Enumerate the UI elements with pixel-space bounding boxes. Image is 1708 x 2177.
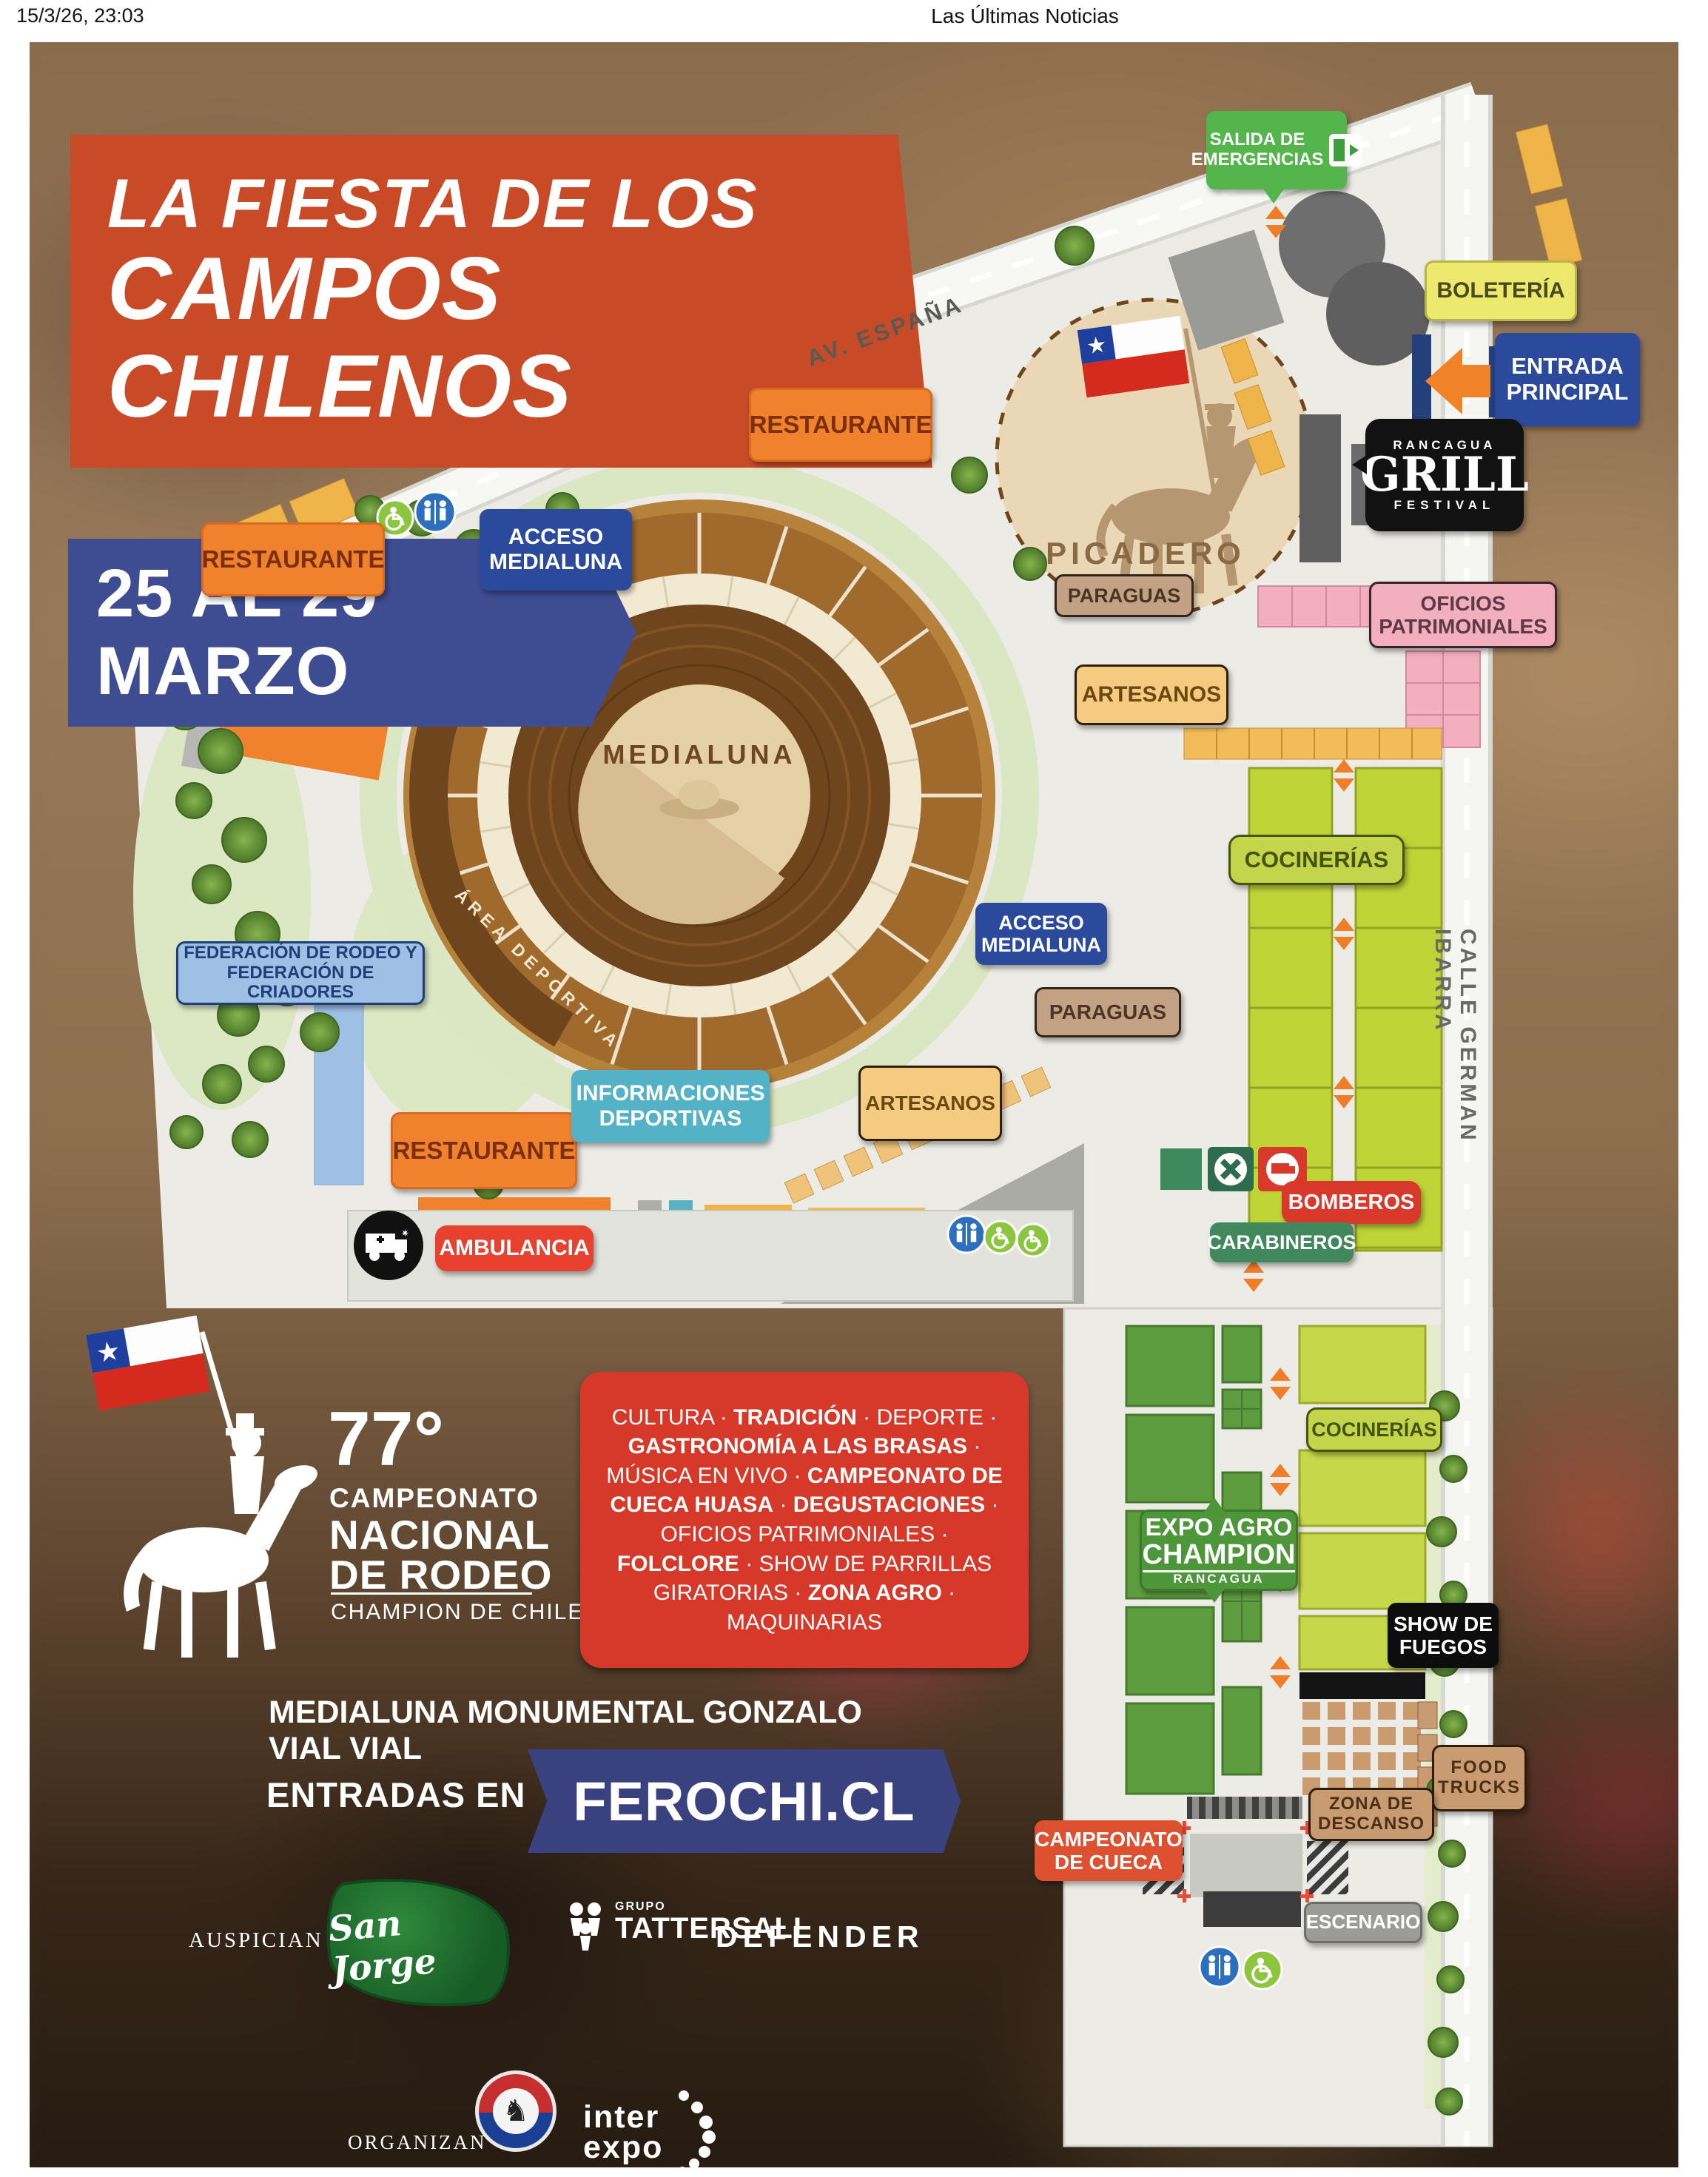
- entrance-arrow-icon: [1425, 348, 1490, 414]
- organizan-label: ORGANIZAN: [348, 2131, 486, 2154]
- badge-cocinerias-bottom: COCINERÍAS: [1306, 1407, 1442, 1452]
- tickets-site-banner: FEROCHI.CL: [528, 1749, 961, 1853]
- activities-badge: CULTURA · TRADICIÓN · DEPORTE · GASTRONO…: [580, 1372, 1029, 1668]
- page-title: Las Últimas Noticias: [931, 4, 1119, 28]
- badge-artesanos-bottom: ARTESANOS: [858, 1066, 1002, 1141]
- badge-show-de-fuegos: SHOW DE FUEGOS: [1388, 1603, 1499, 1668]
- auspician-label: AUSPICIAN: [189, 1928, 323, 1953]
- badge-ambulancia: AMBULANCIA: [435, 1225, 594, 1271]
- event-number: 77°: [328, 1396, 444, 1484]
- activities-text: CULTURA · TRADICIÓN · DEPORTE · GASTRONO…: [602, 1403, 1006, 1638]
- defender-logo: DEFENDER: [716, 1919, 924, 1954]
- expo-agro-line2: CHAMPION: [1143, 1541, 1296, 1572]
- print-timestamp: 15/3/26, 23:03: [16, 4, 144, 27]
- badge-salida-emergencias: SALIDA DE EMERGENCIAS: [1206, 111, 1347, 189]
- medialuna-label: MEDIALUNA: [603, 739, 796, 770]
- badge-food-trucks: FOOD TRUCKS: [1432, 1745, 1527, 1811]
- salida-emergencias-label: SALIDA DE EMERGENCIAS: [1191, 130, 1324, 170]
- carabineros-icon: [1208, 1147, 1254, 1191]
- emergency-exit-icon: [1329, 134, 1362, 166]
- badge-restaurante-top: RESTAURANTE: [749, 388, 932, 462]
- grill-main-label: GRILL: [1360, 451, 1529, 499]
- event-subtitle: CHAMPION DE CHILE: [331, 1600, 584, 1625]
- rider-silhouette: [124, 1413, 320, 1658]
- tattersall-icon: [565, 1900, 608, 1954]
- badge-expo-agro-champion: EXPO AGRO CHAMPION RANCAGUA: [1140, 1510, 1298, 1591]
- expo-agro-line1: EXPO AGRO: [1146, 1515, 1293, 1541]
- badge-informaciones-deportivas: INFORMACIONES DEPORTIVAS: [571, 1070, 770, 1143]
- inter-expo-logo: inter expo: [583, 2088, 721, 2177]
- badge-rancagua-grill-festival: RANCAGUA GRILL FESTIVAL: [1365, 419, 1524, 531]
- rodeo-federation-emblem-icon: ♞: [475, 2070, 557, 2152]
- badge-boleteria: BOLETERÍA: [1425, 260, 1577, 321]
- badge-entrada-principal: ENTRADA PRINCIPAL: [1495, 333, 1640, 426]
- badge-restaurante-bottom: RESTAURANTE: [391, 1112, 577, 1189]
- badge-federacion: FEDERACIÓN DE RODEO Y FEDERACIÓN DE CRIA…: [176, 941, 425, 1005]
- badge-oficios-patrimoniales: OFICIOS PATRIMONIALES: [1369, 582, 1557, 648]
- badge-carabineros: CARABINEROS: [1210, 1222, 1354, 1262]
- badge-escenario: ESCENARIO: [1304, 1902, 1422, 1943]
- badge-cocinerias-top: COCINERÍAS: [1228, 835, 1405, 885]
- poster-title-line1: LA FIESTA DE LOS: [107, 167, 932, 240]
- event-line3: DE RODEO: [329, 1551, 552, 1598]
- badge-artesanos-top: ARTESANOS: [1075, 664, 1228, 725]
- svg-text:★: ★: [1085, 332, 1108, 359]
- badge-bomberos: BOMBEROS: [1282, 1181, 1421, 1224]
- horseman-flag-art: ★: [78, 1316, 344, 1689]
- chilean-flag-icon: ★: [86, 1316, 210, 1411]
- badge-paraguas-top: PARAGUAS: [1055, 574, 1194, 617]
- picadero-label: PICADERO: [1046, 536, 1245, 571]
- svg-text:✷: ✷: [401, 1228, 409, 1239]
- badge-restaurante-left: RESTAURANTE: [201, 522, 385, 596]
- badge-zona-de-descanso: ZONA DE DESCANSO: [1308, 1788, 1434, 1841]
- event-divider: [331, 1592, 532, 1595]
- tickets-label: ENTRADAS EN: [266, 1774, 525, 1815]
- expo-agro-line3: RANCAGUA: [1173, 1572, 1264, 1586]
- ambulance-icon: ✷: [354, 1211, 423, 1280]
- san-jorge-name: San Jorge: [327, 1894, 510, 1991]
- interexpo-dots-icon: [669, 2088, 721, 2177]
- badge-campeonato-de-cueca: CAMPEONATO DE CUECA: [1035, 1820, 1183, 1881]
- grill-bottom-label: FESTIVAL: [1394, 499, 1496, 511]
- badge-paraguas-bottom: PARAGUAS: [1035, 987, 1181, 1037]
- event-line1: CAMPEONATO: [329, 1483, 539, 1514]
- interexpo-line2: expo: [583, 2130, 663, 2165]
- street-calle-german-ibarra-label: CALLE GERMAN IBARRA: [1430, 929, 1480, 1157]
- badge-acceso-medialuna-top: ACCESO MEDIALUNA: [480, 509, 632, 590]
- badge-acceso-medialuna-bottom: ACCESO MEDIALUNA: [975, 903, 1107, 965]
